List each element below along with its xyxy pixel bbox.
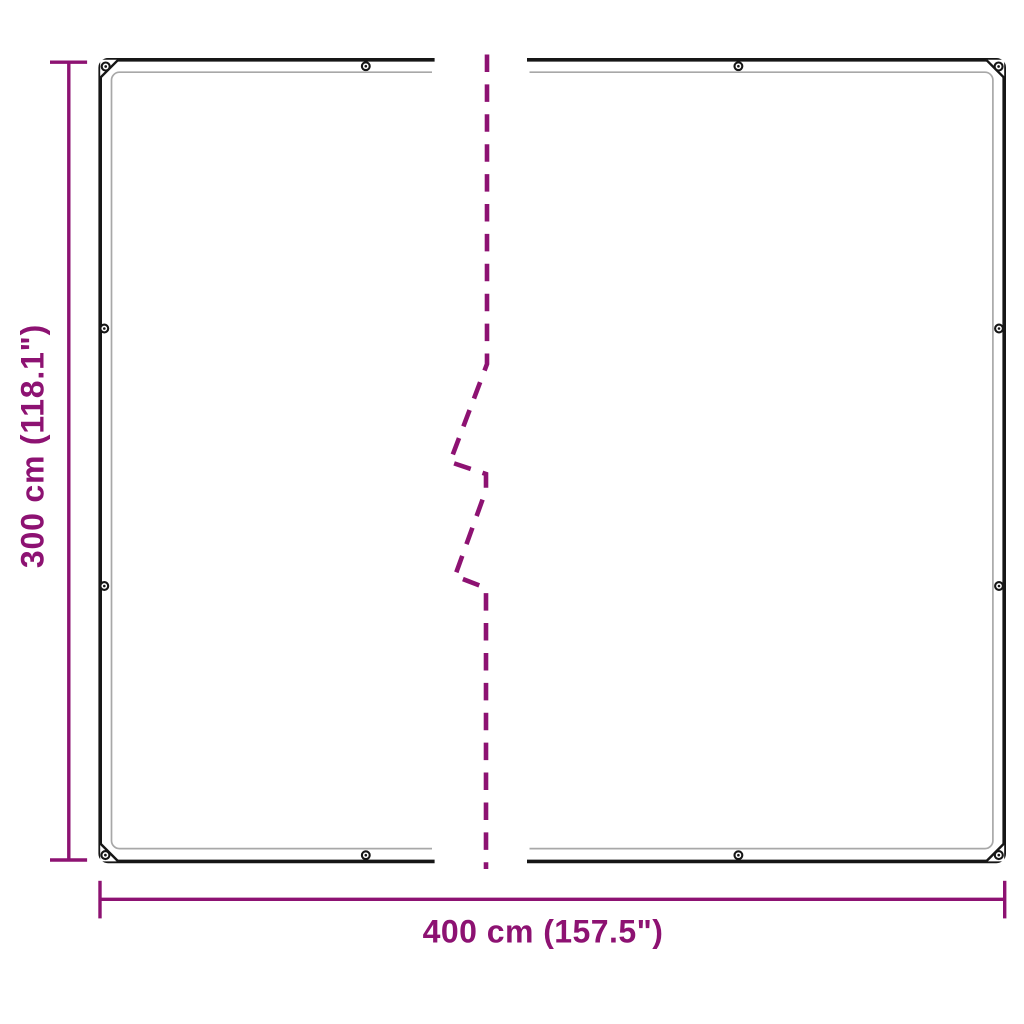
svg-text:400 cm (157.5"): 400 cm (157.5") — [423, 913, 664, 949]
svg-text:300 cm (118.1"): 300 cm (118.1") — [15, 324, 51, 568]
